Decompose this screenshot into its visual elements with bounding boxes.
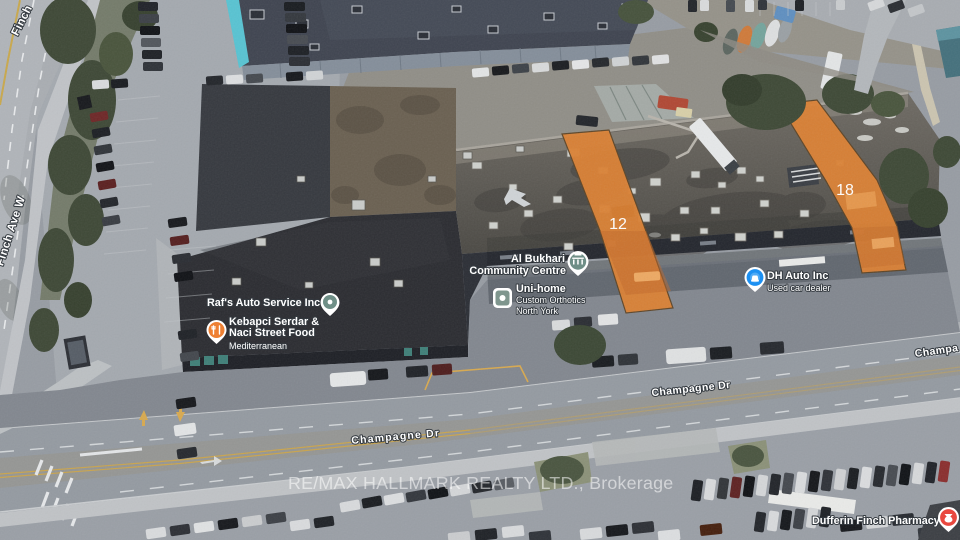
svg-text:DH Auto Inc: DH Auto Inc	[767, 270, 828, 282]
svg-text:Custom Orthotics: Custom Orthotics	[516, 295, 586, 305]
svg-text:Uni-home: Uni-home	[516, 283, 566, 295]
svg-text:Al Bukhari: Al Bukhari	[511, 253, 565, 265]
svg-text:Community Centre: Community Centre	[469, 265, 566, 277]
svg-text:Naci Street Food: Naci Street Food	[229, 327, 315, 339]
svg-text:Dufferin Finch Pharmacy: Dufferin Finch Pharmacy	[812, 515, 940, 527]
svg-text:North York: North York	[516, 306, 559, 316]
svg-text:Mediterranean: Mediterranean	[229, 341, 287, 351]
svg-text:Used car dealer: Used car dealer	[767, 283, 831, 293]
svg-text:Raf's Auto Service Inc: Raf's Auto Service Inc	[207, 297, 320, 309]
svg-text:RE/MAX HALLMARK REALTY LTD.,: RE/MAX HALLMARK REALTY LTD., Brokerage	[288, 473, 673, 493]
